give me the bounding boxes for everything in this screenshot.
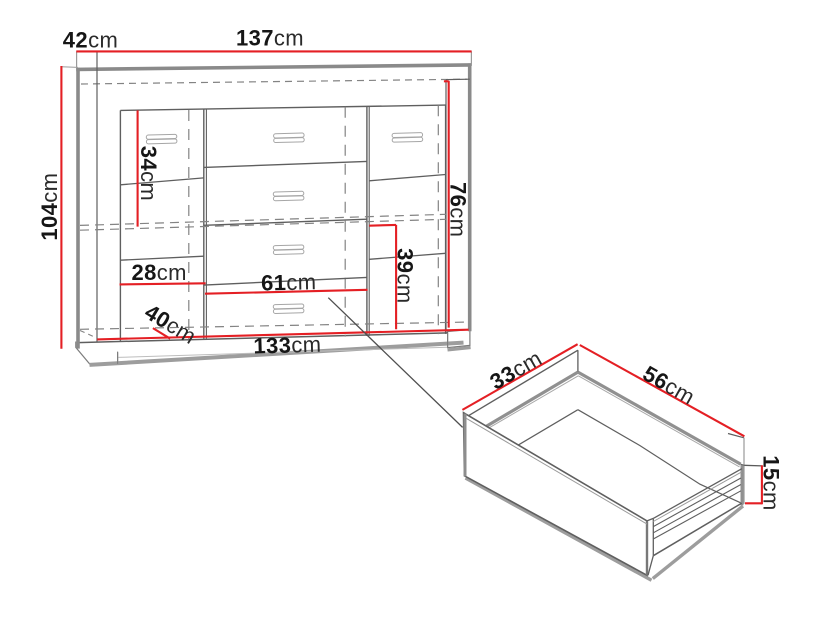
svg-text:34cm: 34cm <box>136 146 161 201</box>
svg-text:76cm: 76cm <box>446 182 471 237</box>
svg-text:133cm: 133cm <box>253 332 322 359</box>
svg-text:15cm: 15cm <box>759 455 784 510</box>
svg-text:137cm: 137cm <box>236 25 304 50</box>
svg-text:104cm: 104cm <box>37 173 62 241</box>
svg-text:39cm: 39cm <box>393 248 418 303</box>
svg-text:42cm: 42cm <box>63 28 118 53</box>
svg-text:28cm: 28cm <box>131 260 186 285</box>
svg-text:61cm: 61cm <box>261 269 317 295</box>
